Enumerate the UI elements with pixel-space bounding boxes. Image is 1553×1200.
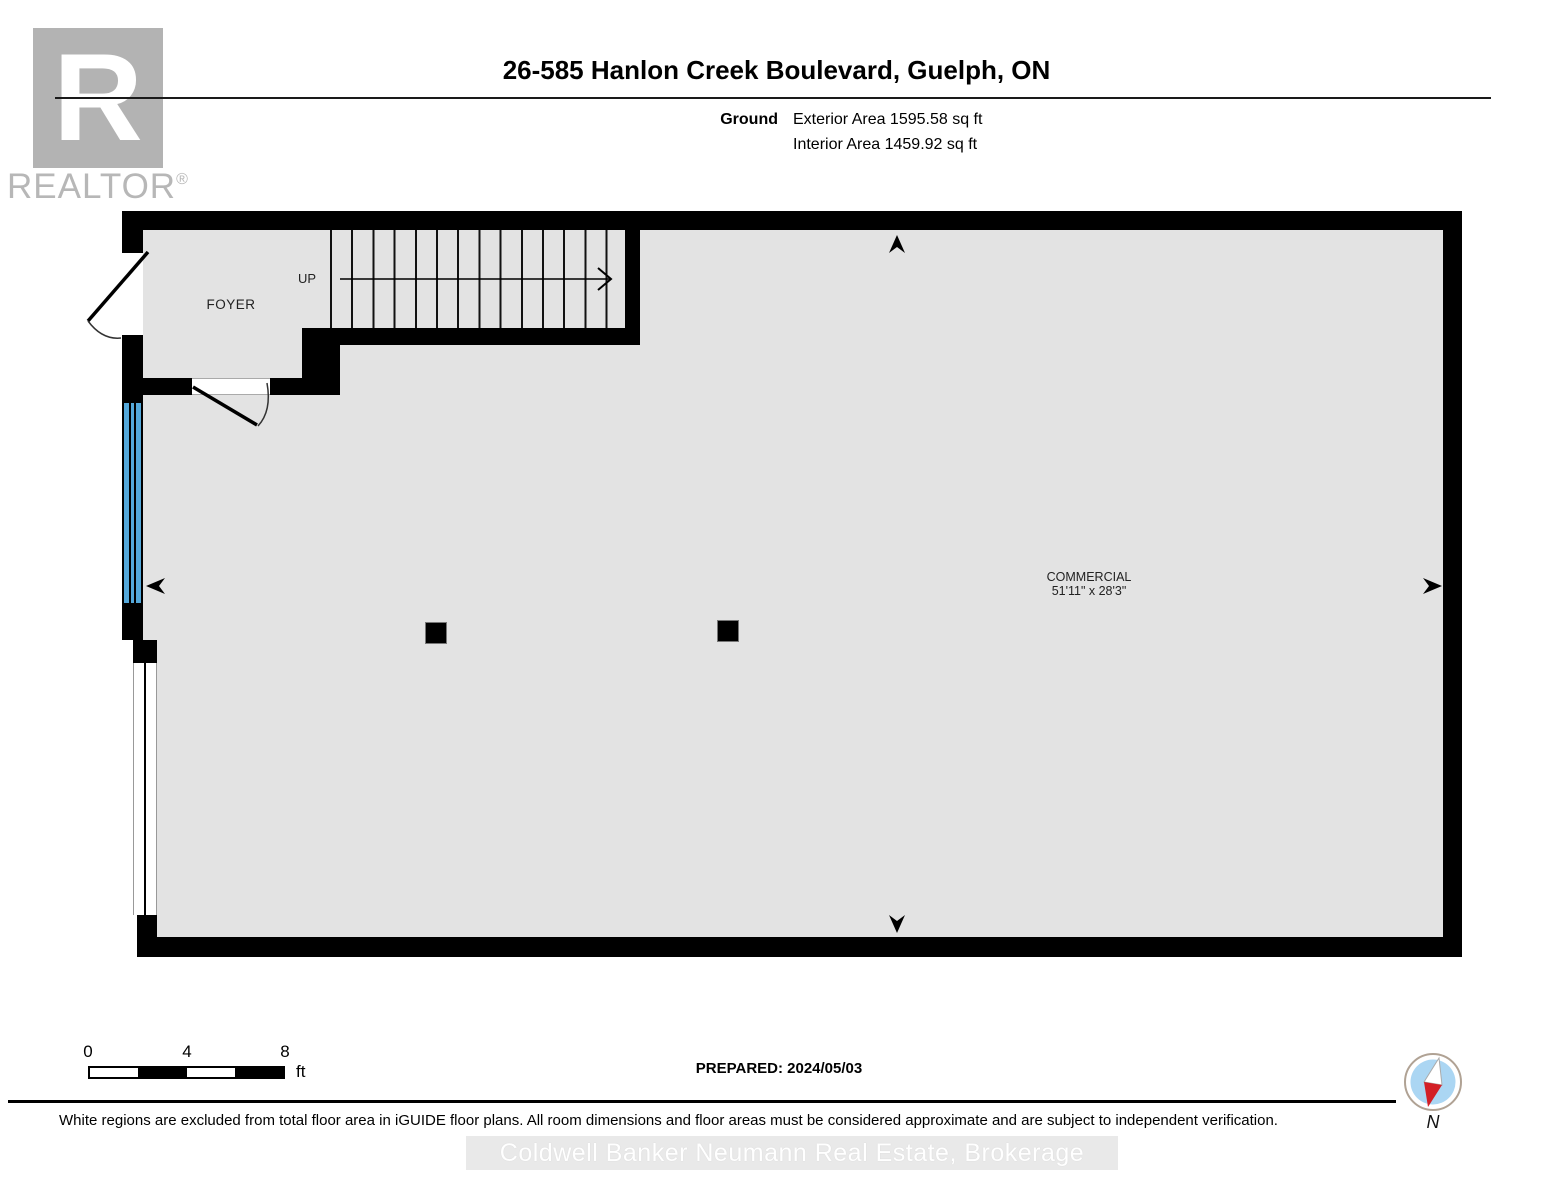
floor-plan: FOYER UP COMMERCIAL 51'11" x 28'3" <box>122 211 1462 957</box>
scale-segment <box>235 1068 283 1077</box>
direction-dart-west-icon <box>146 578 165 594</box>
scale-unit-label: ft <box>296 1062 305 1082</box>
header-divider <box>55 97 1491 99</box>
entry-door-icon <box>88 252 148 338</box>
scale-tick-4: 4 <box>177 1042 197 1062</box>
foyer-door-icon <box>193 383 268 426</box>
direction-dart-south-icon <box>889 915 905 933</box>
stairs-up-arrow-icon <box>340 268 611 290</box>
registered-mark: ® <box>176 171 189 188</box>
exterior-area-label: Exterior Area 1595.58 sq ft <box>793 111 982 129</box>
direction-dart-north-icon <box>889 235 905 253</box>
direction-dart-east-icon <box>1423 578 1442 594</box>
page-title: 26-585 Hanlon Creek Boulevard, Guelph, O… <box>0 55 1553 86</box>
scale-tick-8: 8 <box>275 1042 295 1062</box>
scale-segment <box>90 1068 138 1077</box>
floor-name-label: Ground <box>578 111 778 129</box>
brokerage-watermark: Coldwell Banker Neumann Real Estate, Bro… <box>466 1136 1118 1170</box>
scale-bar <box>88 1066 285 1079</box>
scale-segment <box>187 1068 235 1077</box>
scale-segment <box>138 1068 186 1077</box>
interior-area-label: Interior Area 1459.92 sq ft <box>793 136 977 154</box>
footer-divider <box>8 1100 1396 1103</box>
realtor-wordmark: REALTOR® <box>7 167 207 207</box>
prepared-date: PREPARED: 2024/05/03 <box>629 1060 929 1077</box>
plan-annotations <box>82 211 1502 957</box>
realtor-wordmark-text: REALTOR <box>7 167 176 206</box>
floor-plan-page: R REALTOR® 26-585 Hanlon Creek Boulevard… <box>0 0 1553 1200</box>
disclaimer-text: White regions are excluded from total fl… <box>59 1112 1499 1129</box>
scale-tick-0: 0 <box>78 1042 98 1062</box>
